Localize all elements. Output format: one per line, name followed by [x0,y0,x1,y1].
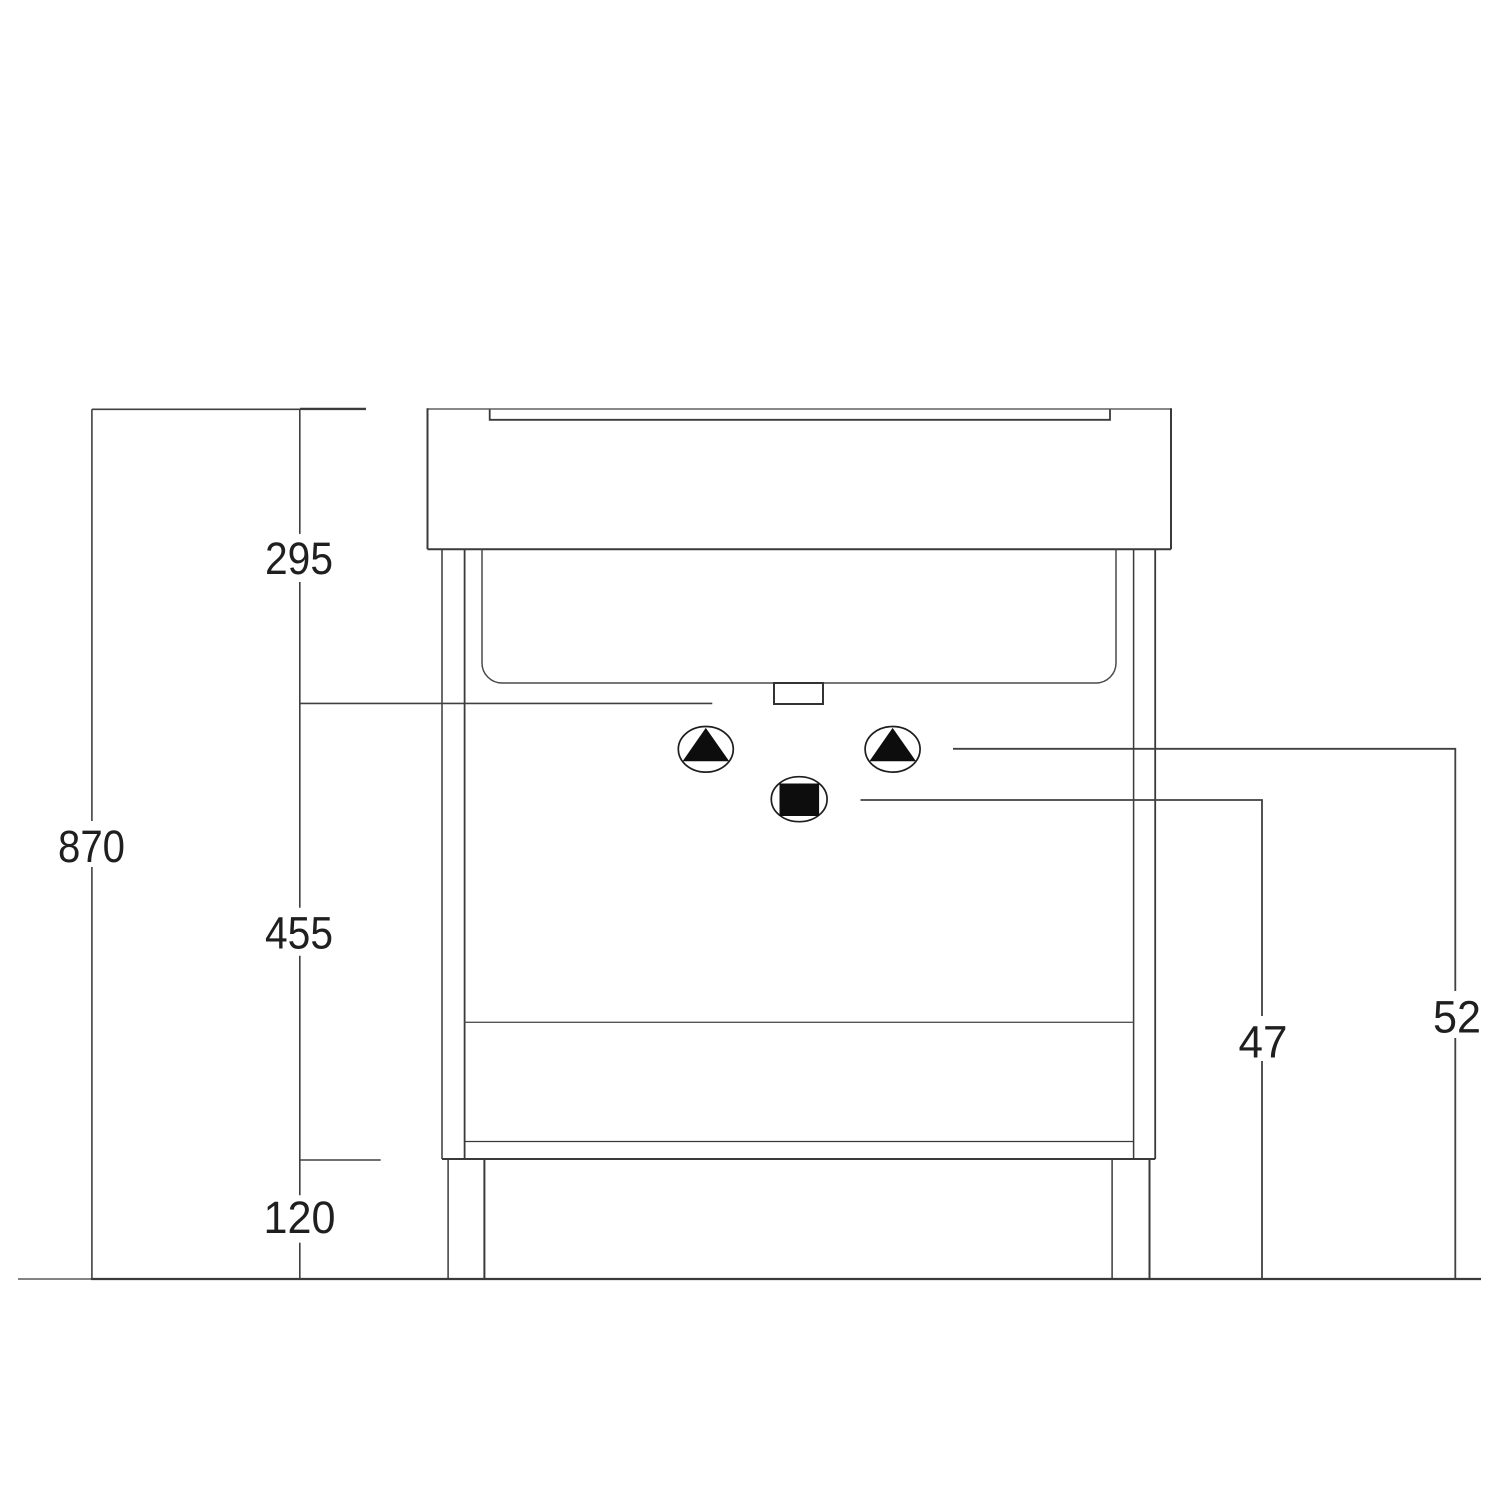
svg-text:52: 52 [1433,992,1481,1043]
svg-text:455: 455 [265,908,333,959]
svg-text:47: 47 [1239,1017,1288,1068]
svg-text:120: 120 [264,1192,336,1243]
svg-text:295: 295 [265,533,333,584]
svg-text:870: 870 [58,821,125,872]
